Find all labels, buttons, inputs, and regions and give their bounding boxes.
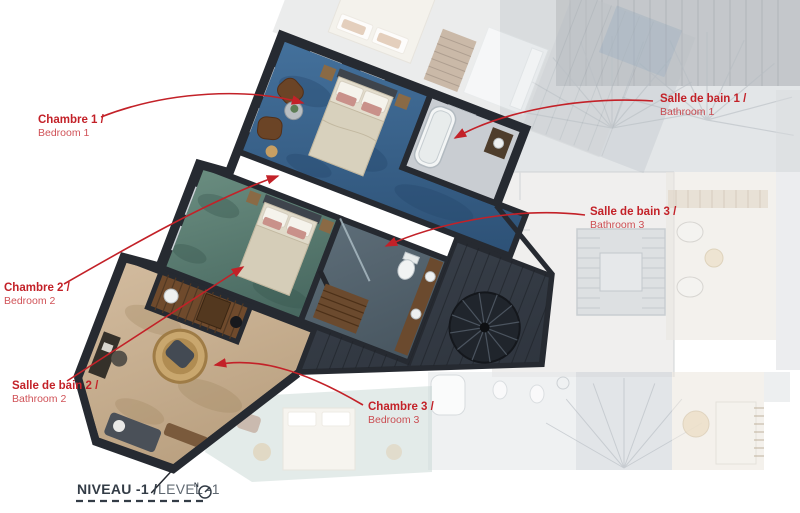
label-bathroom-2-fr: Salle de bain 2 / [12, 380, 99, 392]
compass-north-letter: N [194, 482, 199, 489]
faded-bottom-band [428, 372, 790, 470]
label-bathroom-2-en: Bathroom 2 [12, 393, 66, 405]
faded-right-room [666, 172, 776, 340]
level-title: NIVEAU -1 / LEVEL -1 N [76, 481, 220, 501]
label-bathroom-1-en: Bathroom 1 [660, 106, 714, 118]
label-bedroom-1-fr: Chambre 1 / [38, 114, 105, 126]
faded-stairwell [577, 229, 665, 315]
level-title-fr: NIVEAU -1 / [77, 481, 157, 497]
label-bedroom-2-en: Bedroom 2 [4, 295, 56, 307]
label-bedroom-1-en: Bedroom 1 [38, 127, 90, 139]
floor-plan-page: Chambre 1 / Bedroom 1 Salle de bain 1 / … [0, 0, 800, 513]
label-bedroom-3-en: Bedroom 3 [368, 414, 420, 426]
faded-right-strip [776, 90, 800, 370]
label-bathroom-3-en: Bathroom 3 [590, 219, 644, 231]
floor-plan-canvas: Chambre 1 / Bedroom 1 Salle de bain 1 / … [0, 0, 800, 513]
label-bathroom-3-fr: Salle de bain 3 / [590, 206, 677, 218]
label-bedroom-3-fr: Chambre 3 / [368, 401, 435, 413]
label-bathroom-1-fr: Salle de bain 1 / [660, 93, 747, 105]
beanbag-icon [257, 116, 283, 140]
label-bedroom-2-fr: Chambre 2 / [4, 282, 71, 294]
